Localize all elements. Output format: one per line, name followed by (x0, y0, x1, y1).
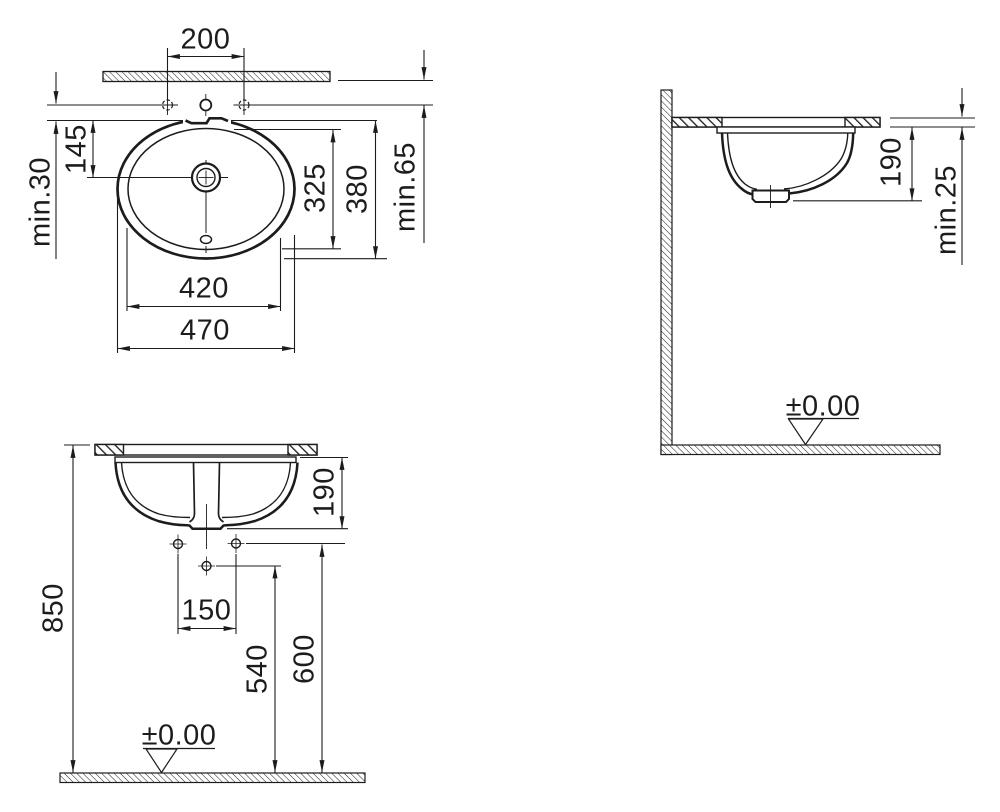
level-label-front: ±0.00 (142, 722, 217, 751)
dim-label-supply-height: 600 (291, 634, 320, 684)
dim-label-trap-height: 540 (244, 644, 273, 694)
dim-label-side-depth: 190 (878, 137, 907, 187)
side-level-marker (789, 419, 824, 445)
side-floor (661, 445, 940, 455)
dim-label-mounting-height: 850 (40, 583, 69, 633)
side-bowl-outer (722, 133, 754, 195)
front-level-marker (146, 749, 177, 773)
dim-label-bowl-width: 420 (179, 275, 229, 304)
plan-countertop-strip (103, 72, 330, 82)
side-bowl-inner (728, 133, 758, 189)
dim-label-edge-min: min.30 (27, 157, 56, 247)
tap-hole-center (200, 100, 211, 111)
dim-label-rim-to-drain: 145 (63, 124, 92, 174)
dim-label-overall-width: 470 (180, 317, 230, 346)
technical-drawing: 200 145 min.30 325 380 min.65 420 470 19… (0, 0, 1000, 812)
front-floor (60, 773, 365, 783)
front-rim-flange (115, 457, 296, 463)
side-wall (661, 90, 672, 455)
front-bowl-inner (122, 463, 191, 518)
side-rim-flange (717, 127, 855, 133)
front-drain-column (190, 463, 195, 523)
dim-label-tap-hole-spacing: 200 (181, 26, 231, 55)
overflow-hole (201, 236, 212, 244)
front-bowl-inner-right (222, 463, 291, 518)
dim-label-hole-spacing: 150 (182, 597, 232, 626)
dim-label-overall-length: 380 (344, 164, 373, 214)
dim-label-counter-min: min.25 (933, 165, 962, 255)
side-bowl-inner-right (784, 133, 848, 189)
dim-label-front-depth: 190 (311, 467, 340, 517)
side-bowl-outer-right (789, 133, 853, 194)
plan-view (47, 48, 433, 353)
front-countertop (95, 445, 317, 456)
level-label-side: ±0.00 (786, 393, 861, 422)
dim-label-bowl-length: 325 (302, 163, 331, 213)
dim-label-wall-min: min.65 (392, 142, 421, 232)
